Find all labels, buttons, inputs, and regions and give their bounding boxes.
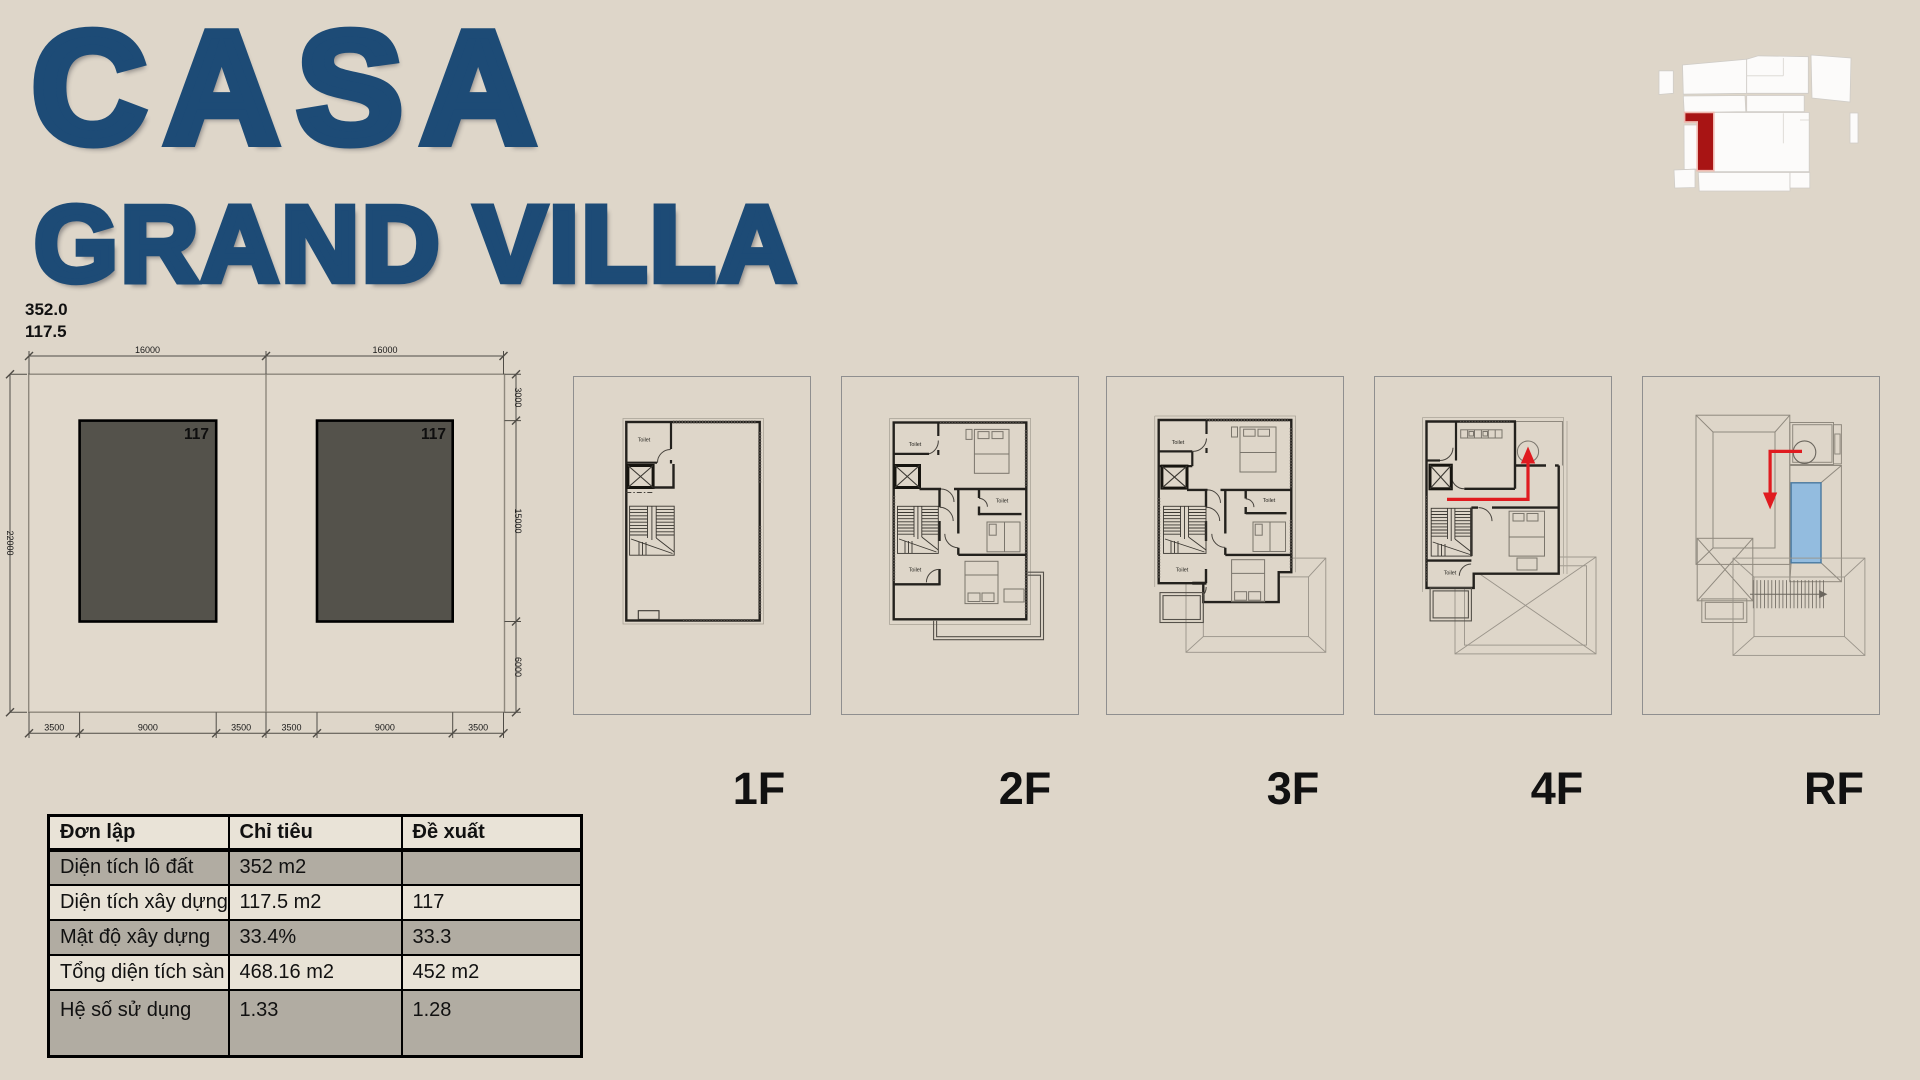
- svg-text:3500: 3500: [281, 722, 301, 732]
- svg-text:Toilet: Toilet: [909, 442, 922, 448]
- svg-text:22000: 22000: [5, 530, 15, 555]
- svg-text:3500: 3500: [468, 722, 488, 732]
- svg-text:9000: 9000: [138, 722, 158, 732]
- svg-text:117: 117: [421, 426, 446, 443]
- svg-text:Toilet: Toilet: [1263, 498, 1276, 504]
- svg-text:117: 117: [184, 426, 209, 443]
- svg-text:Toilet: Toilet: [1172, 440, 1185, 446]
- svg-text:Toilet: Toilet: [996, 499, 1009, 505]
- svg-text:16000: 16000: [135, 345, 160, 355]
- svg-text:16000: 16000: [372, 345, 397, 355]
- svg-text:15000: 15000: [513, 508, 523, 533]
- svg-text:Toilet: Toilet: [1176, 568, 1189, 574]
- svg-text:Toilet: Toilet: [1444, 571, 1457, 577]
- svg-text:Toilet: Toilet: [909, 568, 922, 574]
- svg-text:3000: 3000: [513, 387, 523, 407]
- svg-text:3500: 3500: [44, 722, 64, 732]
- svg-text:6000: 6000: [513, 657, 523, 677]
- svg-text:3500: 3500: [231, 722, 251, 732]
- svg-text:Toilet: Toilet: [638, 438, 651, 444]
- svg-text:9000: 9000: [375, 722, 395, 732]
